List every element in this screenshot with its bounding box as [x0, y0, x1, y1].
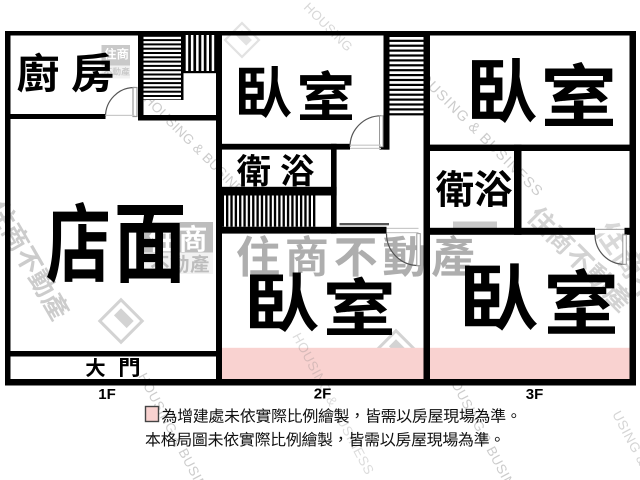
svg-text:1F: 1F — [98, 386, 116, 403]
svg-text:2F: 2F — [314, 386, 332, 403]
svg-text:3F: 3F — [526, 386, 544, 403]
